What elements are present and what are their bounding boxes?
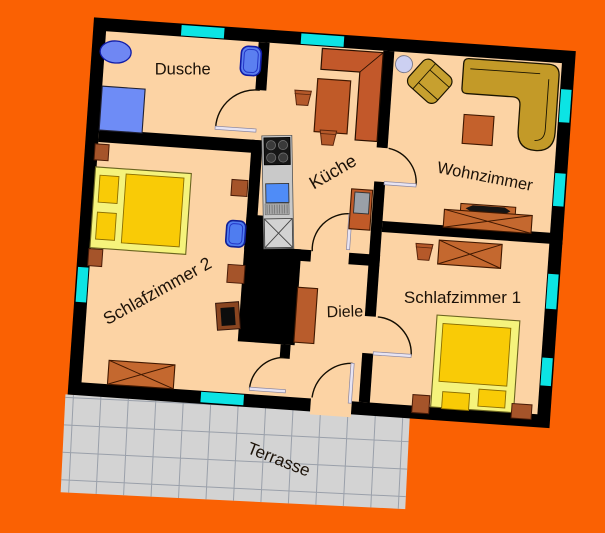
svg-text:Diele: Diele xyxy=(326,303,363,321)
svg-text:Dusche: Dusche xyxy=(155,61,211,79)
svg-text:Schlafzimmer 1: Schlafzimmer 1 xyxy=(404,288,521,307)
